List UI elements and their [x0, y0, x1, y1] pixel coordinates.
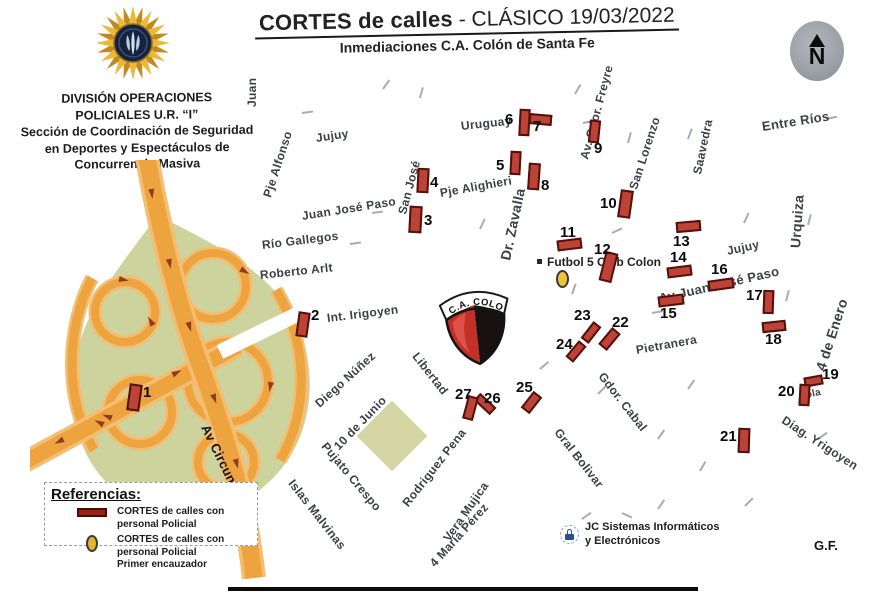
direction-tick	[687, 379, 695, 389]
scan-edge-line	[228, 587, 698, 591]
direction-tick	[539, 361, 549, 370]
cut-number: 18	[765, 331, 782, 348]
author-initials: G.F.	[814, 538, 838, 553]
page-title-main: CORTES de calles	[259, 6, 453, 35]
legend-item-label: CORTES de calles con personal Policial P…	[117, 534, 251, 572]
legend-box: Referencias: CORTES de calles con person…	[44, 482, 258, 546]
division-line: Sección de Coordinación de Seguridad	[18, 122, 256, 141]
cut-number: 14	[670, 249, 687, 266]
street-label: Diag. Yrigoyen	[779, 413, 860, 473]
cut-marker	[408, 206, 422, 234]
cut-number: 17	[746, 287, 763, 304]
cut-number: 26	[484, 390, 501, 407]
direction-tick	[785, 290, 790, 301]
cut-number: 22	[612, 314, 629, 331]
cut-number: 27	[455, 386, 472, 403]
cut-number: 23	[574, 307, 591, 324]
street-label: Saavedra	[690, 118, 715, 175]
street-label: Pietranera	[635, 332, 698, 357]
square-bullet-icon	[537, 259, 542, 264]
cut-number: 3	[424, 212, 432, 229]
legend-item: CORTES de calles con personal Policial	[77, 506, 251, 531]
page-header: CORTES de calles - CLÁSICO 19/03/2022 In…	[252, 2, 683, 58]
cut-marker	[763, 290, 775, 314]
cut-marker	[738, 428, 751, 453]
cut-number: 2	[311, 307, 319, 324]
direction-tick	[581, 512, 591, 520]
street-label: Dr. Zavalla	[497, 187, 528, 262]
street-label: Juan	[245, 78, 259, 107]
cut-number: 21	[720, 428, 737, 445]
cut-number: 9	[594, 140, 602, 157]
division-line: en Deportes y Espectáculos de	[18, 138, 256, 157]
direction-tick	[350, 241, 361, 245]
direction-tick	[302, 110, 313, 114]
cut-number: 19	[822, 366, 839, 383]
cut-marker	[509, 151, 521, 176]
street-label: Gdor. Cabal	[595, 370, 650, 434]
legend-title: Referencias:	[51, 486, 251, 503]
street-label: San Lorenzo	[626, 115, 663, 191]
street-label: Entre Ríos	[761, 108, 831, 133]
cut-number: 25	[516, 379, 533, 396]
cut-marker-icon	[77, 508, 107, 517]
street-label: Pje Alighieri	[439, 173, 513, 199]
cut-marker	[798, 384, 810, 407]
scanned-map-page: CORTES de calles - CLÁSICO 19/03/2022 In…	[0, 0, 883, 592]
jc-credit: JC Sistemas Informáticos y Electrónicos	[560, 521, 720, 549]
street-label: Jujuy	[315, 126, 349, 144]
street-label: 4 de Enero	[812, 297, 850, 373]
cut-marker	[581, 321, 602, 344]
cut-number: 7	[533, 118, 541, 135]
north-letter: N	[809, 45, 826, 68]
direction-tick	[419, 87, 424, 98]
cut-marker	[666, 265, 692, 279]
direction-tick	[657, 499, 665, 509]
lock-icon	[560, 525, 579, 544]
street-label: Urquiza	[787, 194, 807, 248]
encauzador-oval-marker	[556, 270, 569, 288]
cut-number: 24	[556, 336, 573, 353]
cut-marker	[416, 168, 429, 194]
cut-number: 12	[594, 241, 611, 258]
cut-number: 13	[673, 233, 690, 250]
direction-tick	[744, 498, 753, 507]
direction-tick	[699, 461, 706, 472]
direction-tick	[479, 219, 485, 230]
cut-number: 4	[430, 174, 438, 191]
cut-number: 10	[600, 195, 617, 212]
direction-tick	[743, 213, 749, 224]
cut-number: 20	[778, 383, 795, 400]
direction-tick	[687, 128, 693, 139]
direction-tick	[807, 214, 812, 225]
cut-number: 6	[505, 111, 513, 128]
legend-item-label: CORTES de calles con personal Policial	[117, 506, 251, 531]
legend-item: CORTES de calles con personal Policial P…	[77, 534, 251, 572]
direction-tick	[622, 512, 633, 518]
cut-number: 15	[660, 305, 677, 322]
police-badge-icon	[96, 2, 170, 84]
street-label: Int. Irigoyen	[326, 302, 399, 325]
street-label: Gral Bolivar	[551, 426, 606, 491]
direction-tick	[612, 227, 623, 233]
north-compass-icon: N	[790, 21, 844, 81]
direction-tick	[571, 283, 577, 294]
cut-marker	[527, 163, 541, 191]
cut-number: 1	[143, 384, 151, 401]
page-title-date: - CLÁSICO 19/03/2022	[453, 4, 675, 32]
cut-number: 8	[541, 177, 549, 194]
direction-tick	[657, 429, 665, 439]
cut-number: 11	[560, 224, 576, 241]
jc-credit-text: JC Sistemas Informáticos y Electrónicos	[585, 521, 720, 549]
encauzador-oval-icon	[86, 535, 98, 552]
cut-marker	[617, 189, 634, 219]
direction-tick	[627, 132, 632, 143]
cut-number: 16	[711, 261, 728, 278]
direction-tick	[382, 79, 390, 89]
street-label: Jujuy	[726, 237, 761, 258]
cut-number: 5	[496, 157, 504, 174]
cut-marker	[676, 220, 702, 233]
direction-tick	[574, 84, 581, 95]
colon-crest: C.A. COLON	[431, 270, 521, 379]
